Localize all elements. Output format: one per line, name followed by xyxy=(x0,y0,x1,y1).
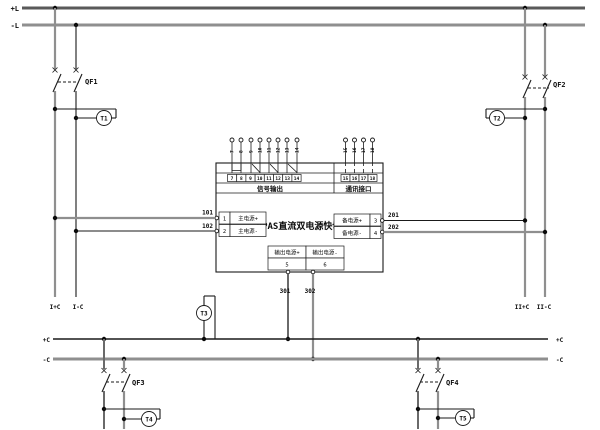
signal-wire-label-8: 14 xyxy=(295,147,301,153)
signal-wire-label-2: 8 xyxy=(239,150,245,153)
signal-terminal-no-6: 12 xyxy=(275,176,281,182)
output-plus-label: 输出电源+ xyxy=(274,249,300,257)
breaker-qf3: QF3 xyxy=(102,368,145,392)
main-plus-no: 1 xyxy=(223,217,226,223)
feeder-qf3: QF3 T4 xyxy=(102,337,161,429)
signal-wire-label-3: 9 xyxy=(249,150,255,153)
meter-t4-label: T4 xyxy=(145,417,153,424)
backup-plus-no: 3 xyxy=(374,219,377,225)
output-minus-label: 输出电源- xyxy=(312,249,337,257)
signal-wire-label-7: 13 xyxy=(285,147,291,153)
signal-output-group-label: 信号输出 xyxy=(257,184,283,193)
schematic-canvas: +L -L QF1 T1 I+C I-C xyxy=(0,0,600,430)
comm-interface-group-label: 通讯接口 xyxy=(346,184,372,193)
meter-t3-label: T3 xyxy=(200,311,208,318)
main-input-terminals: 1 主电源+ 2 主电源- xyxy=(215,212,266,237)
output-plus-no: 5 xyxy=(285,263,288,269)
feeder-main-input: QF1 T1 I+C I-C xyxy=(50,6,116,311)
comm-terminal-no-3: 17 xyxy=(361,176,367,182)
comm-wire-label-2: 16 xyxy=(352,147,358,153)
signal-terminal-no-8: 14 xyxy=(294,176,300,182)
breaker-qf2-label: QF2 xyxy=(553,81,566,89)
signal-terminal-no-4: 10 xyxy=(257,176,263,182)
signal-terminal-no-2: 8 xyxy=(240,176,243,182)
breaker-qf4: QF4 xyxy=(416,368,459,392)
meter-t2: T2 xyxy=(486,107,547,126)
wire-301-label: 301 xyxy=(280,288,291,295)
meter-t2-label: T2 xyxy=(493,116,501,123)
signal-wire-label-1: 7 xyxy=(230,150,236,153)
bus-top-positive-label: +L xyxy=(11,5,19,13)
dpas-device: 7 8 9 10 11 12 13 14 7 8 9 10 11 12 13 1 xyxy=(215,138,384,274)
feeder-backup-input: QF2 T2 II+C II-C xyxy=(486,6,566,311)
meter-t4: T4 xyxy=(102,407,160,427)
signal-terminal-no-3: 9 xyxy=(249,176,252,182)
device-title: DPAS直流双电源快切 xyxy=(257,220,342,232)
bus-top-negative: -L xyxy=(11,22,585,30)
wire-201-label: 201 xyxy=(388,212,399,219)
signal-terminal-no-7: 13 xyxy=(285,176,291,182)
signal-terminal-no-1: 7 xyxy=(231,176,234,182)
wire-302: 302 xyxy=(305,274,316,361)
output-minus-no: 6 xyxy=(323,263,326,269)
wire-202-label: 202 xyxy=(388,224,399,231)
comm-terminal-no-1: 15 xyxy=(343,176,349,182)
feeder-left-negative-label: I-C xyxy=(73,304,84,311)
wire-302-label: 302 xyxy=(305,288,316,295)
wire-301: 301 xyxy=(280,274,291,341)
bus-bottom-positive-label-right: +C xyxy=(556,337,564,344)
backup-input-terminals: 备电源+ 3 备电源- 4 xyxy=(334,214,384,239)
wire-201: 201 xyxy=(384,212,527,223)
feeder-right-positive-label: II+C xyxy=(515,304,530,311)
comm-wire-label-1: 15 xyxy=(343,147,349,153)
meter-t1-label: T1 xyxy=(100,116,108,123)
feeder-left-positive-label: I+C xyxy=(50,304,61,311)
comm-terminal-no-4: 18 xyxy=(370,176,376,182)
meter-t5-label: T5 xyxy=(459,416,467,423)
comm-wire-label-4: 18 xyxy=(370,147,376,153)
main-minus-no: 2 xyxy=(223,229,226,235)
meter-t5: T5 xyxy=(416,407,474,426)
main-minus-label: 主电源- xyxy=(238,227,258,235)
feeder-qf4: QF4 T5 xyxy=(416,337,475,429)
meter-t3: T3 xyxy=(197,296,216,341)
signal-wire-label-5: 11 xyxy=(267,147,273,153)
feeder-right-negative-label: II-C xyxy=(537,304,552,311)
backup-plus-label: 备电源+ xyxy=(342,217,363,225)
breaker-qf1: QF1 xyxy=(53,68,98,93)
bus-bottom-negative: -C -C xyxy=(43,357,564,364)
bus-top-positive: +L xyxy=(11,5,585,13)
bus-bottom-positive: +C +C xyxy=(43,337,564,344)
wire-102: 102 xyxy=(74,223,215,233)
wire-101: 101 xyxy=(53,210,215,221)
breaker-qf3-label: QF3 xyxy=(132,379,145,387)
backup-minus-label: 备电源- xyxy=(342,229,362,237)
signal-wire-label-6: 12 xyxy=(276,147,282,153)
meter-t1: T1 xyxy=(53,107,116,126)
breaker-qf1-label: QF1 xyxy=(85,78,98,86)
comm-wire-label-3: 17 xyxy=(361,147,367,153)
signal-wire-label-4: 10 xyxy=(258,147,264,153)
output-terminals: 输出电源+ 输出电源- 5 6 xyxy=(268,246,344,274)
breaker-qf2: QF2 xyxy=(523,75,566,99)
bus-top-negative-label: -L xyxy=(11,22,19,30)
bus-bottom-negative-label-right: -C xyxy=(556,357,564,364)
wire-101-label: 101 xyxy=(202,210,213,217)
wire-202: 202 xyxy=(384,224,547,234)
wire-102-label: 102 xyxy=(202,223,213,230)
bus-bottom-positive-label-left: +C xyxy=(43,337,51,344)
breaker-qf4-label: QF4 xyxy=(446,379,459,387)
main-plus-label: 主电源+ xyxy=(238,215,259,223)
bus-bottom-negative-label-left: -C xyxy=(43,357,51,364)
comm-terminal-no-2: 16 xyxy=(352,176,358,182)
signal-terminal-no-5: 11 xyxy=(266,176,272,182)
